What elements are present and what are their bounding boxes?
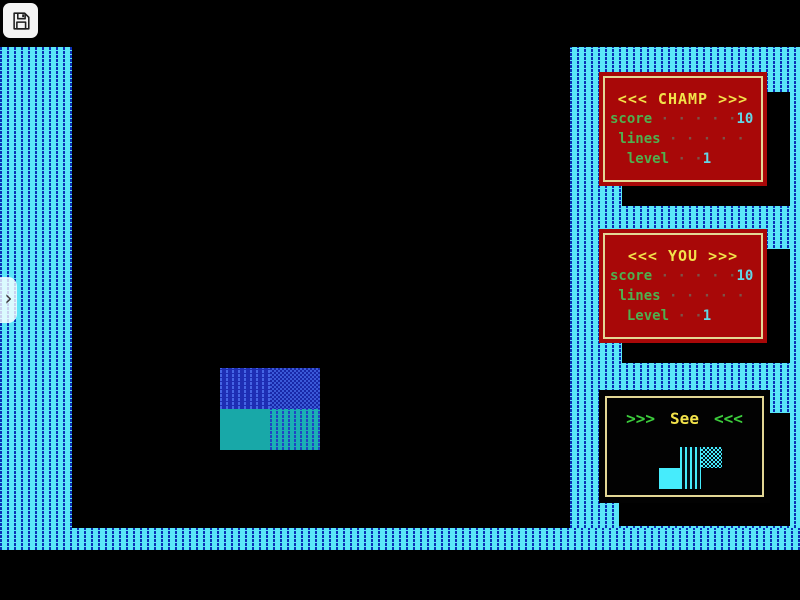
falling-piece-block-bottom-right: [270, 409, 320, 450]
you-lines-label: lines: [610, 288, 661, 304]
dots: · · · · ·: [661, 131, 745, 147]
next-piece-panel: >>>See<<<: [599, 390, 770, 503]
you-score-row: score · · · · ·10: [599, 266, 767, 286]
see-label: See: [670, 409, 699, 429]
next-piece-block: [680, 468, 701, 489]
save-button[interactable]: [3, 3, 38, 38]
dots: · · · · ·: [652, 111, 736, 127]
champ-score-label: score: [610, 111, 652, 127]
next-piece-title: >>>See<<<: [599, 409, 770, 429]
falling-piece-block-top-right: [270, 368, 320, 409]
champ-score-row: score · · · · ·10: [599, 109, 767, 129]
you-panel: <<< YOU >>> score · · · · ·10 lines · · …: [599, 229, 767, 343]
dots: · ·: [669, 308, 703, 324]
chevron-right-icon: ›: [5, 288, 13, 308]
champ-panel: <<< CHAMP >>> score · · · · ·10 lines · …: [599, 72, 767, 186]
next-piece-block: [659, 468, 680, 489]
you-level-row: Level · ·1: [599, 306, 767, 326]
falling-piece-block-top-left: [220, 368, 270, 409]
next-piece-block: [680, 447, 701, 468]
falling-piece-block-bottom-left: [220, 409, 270, 450]
dots: · · · · ·: [661, 288, 745, 304]
champ-title: <<< CHAMP >>>: [599, 89, 767, 109]
you-score-label: score: [610, 268, 652, 284]
champ-level-row: level · ·1: [599, 149, 767, 169]
chevrons-right-icon: >>>: [626, 409, 655, 429]
champ-lines-label: lines: [610, 131, 661, 147]
you-level-value: 1: [703, 308, 711, 324]
playfield-floor-wall: [0, 528, 800, 550]
you-title: <<< YOU >>>: [599, 246, 767, 266]
champ-score-value: 10: [736, 111, 753, 127]
falling-piece: [220, 368, 320, 450]
playfield: [72, 47, 570, 528]
tetris-game-screen: <<< CHAMP >>> score · · · · ·10 lines · …: [0, 0, 800, 600]
dots: · ·: [669, 151, 703, 167]
champ-lines-row: lines · · · · ·: [599, 129, 767, 149]
you-level-label: Level: [610, 308, 669, 324]
champ-level-label: level: [610, 151, 669, 167]
next-piece-block: [701, 447, 722, 468]
chevrons-left-icon: <<<: [714, 409, 743, 429]
you-lines-row: lines · · · · ·: [599, 286, 767, 306]
champ-level-value: 1: [703, 151, 711, 167]
dots: · · · · ·: [652, 268, 736, 284]
sidebar-toggle-tab[interactable]: ›: [0, 277, 17, 323]
you-score-value: 10: [736, 268, 753, 284]
floppy-disk-icon: [10, 10, 32, 32]
